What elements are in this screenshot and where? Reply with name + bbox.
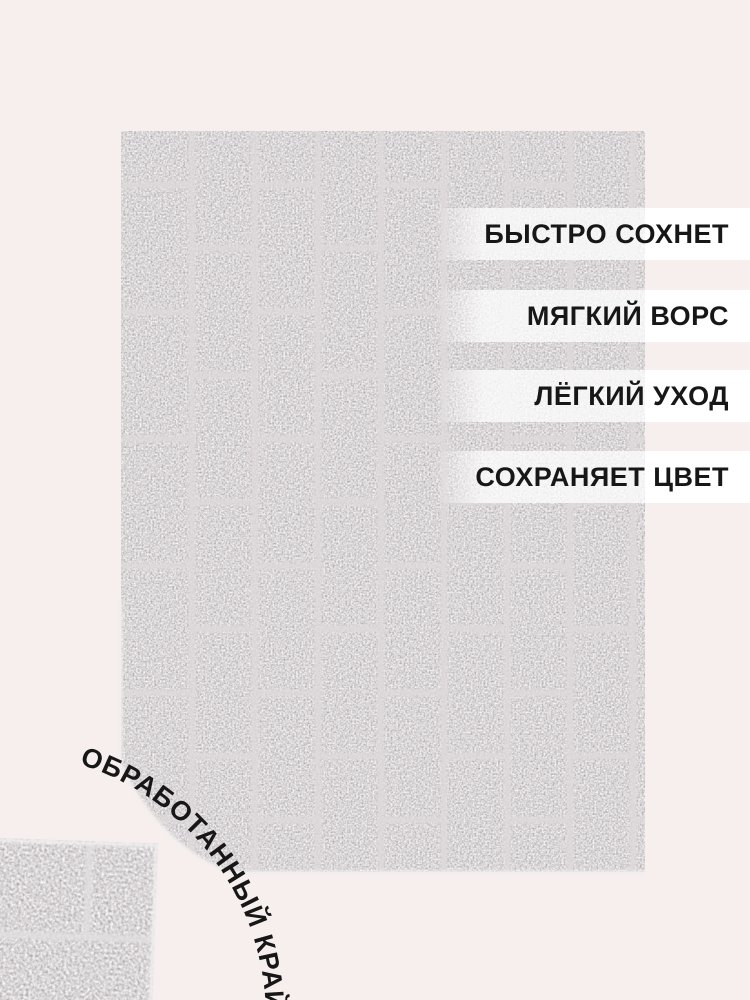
corner-swatch bbox=[0, 837, 158, 1000]
feature-label: ЛЁГКИЙ УХОД bbox=[534, 381, 729, 412]
feature-badge-soft-pile: МЯГКИЙ ВОРС bbox=[435, 290, 750, 342]
feature-badge-easy-care: ЛЁГКИЙ УХОД bbox=[435, 370, 750, 422]
feature-label: БЫСТРО СОХНЕТ bbox=[484, 219, 729, 250]
feature-label: СОХРАНЯЕТ ЦВЕТ bbox=[475, 462, 729, 493]
feature-badge-keeps-color: СОХРАНЯЕТ ЦВЕТ bbox=[435, 451, 750, 503]
product-image: ОБРАБОТАННЫЙ КРАЙ БЫСТРО СОХНЕТ МЯГКИЙ В… bbox=[0, 0, 750, 1000]
feature-badge-quick-dry: БЫСТРО СОХНЕТ bbox=[435, 208, 750, 260]
feature-label: МЯГКИЙ ВОРС bbox=[527, 301, 729, 332]
corner-swatch-texture bbox=[0, 837, 158, 1000]
